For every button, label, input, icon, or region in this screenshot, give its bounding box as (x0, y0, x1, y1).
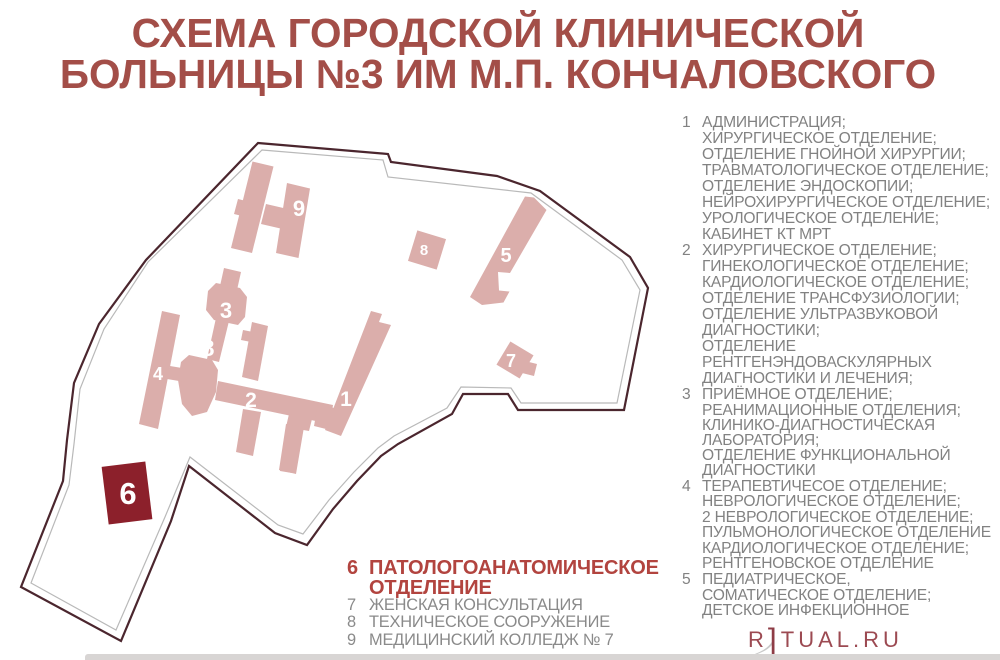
svg-text:8: 8 (202, 335, 215, 361)
svg-text:1: 1 (340, 388, 352, 411)
svg-text:5: 5 (500, 245, 511, 267)
svg-text:6: 6 (119, 476, 136, 511)
svg-text:7: 7 (506, 351, 516, 371)
svg-text:3: 3 (220, 298, 232, 323)
svg-text:9: 9 (293, 196, 305, 221)
svg-text:4: 4 (153, 364, 163, 384)
svg-text:8: 8 (420, 242, 428, 259)
svg-text:2: 2 (245, 389, 257, 412)
